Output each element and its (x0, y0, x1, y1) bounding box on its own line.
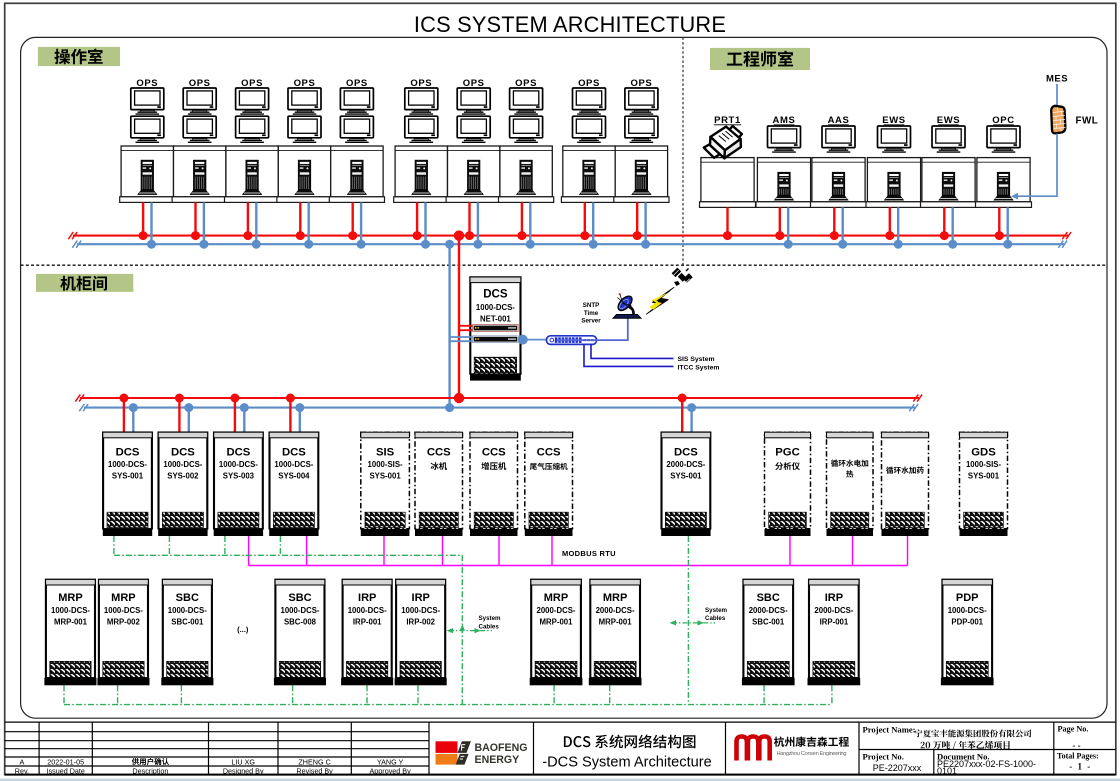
svg-text:SBC: SBC (288, 592, 311, 604)
svg-text:EWS: EWS (937, 115, 960, 126)
svg-text:PGC: PGC (775, 447, 799, 459)
svg-text:Description: Description (132, 766, 168, 775)
svg-text:SYS-001: SYS-001 (670, 472, 702, 481)
svg-text:GDS: GDS (971, 447, 996, 459)
svg-text:MRP-001: MRP-001 (54, 617, 88, 626)
svg-text:PRT1: PRT1 (714, 115, 741, 126)
svg-text:ENERGY: ENERGY (475, 754, 520, 766)
svg-text:SIS System: SIS System (678, 356, 715, 363)
svg-text:1000-DCS-: 1000-DCS- (104, 606, 143, 615)
svg-text:ICS SYSTEM ARCHITECTURE: ICS SYSTEM ARCHITECTURE (414, 12, 726, 37)
svg-text:DCS: DCS (282, 447, 306, 459)
svg-text:Cables: Cables (479, 624, 500, 631)
svg-text:PE-2207xxx: PE-2207xxx (873, 763, 922, 773)
svg-text:MES: MES (1046, 74, 1068, 85)
svg-text:1000-DCS-: 1000-DCS- (51, 606, 90, 615)
svg-text:System: System (705, 607, 728, 614)
svg-text:2000-DCS-: 2000-DCS- (749, 606, 788, 615)
svg-text:IRP: IRP (412, 592, 430, 604)
svg-text:AMS: AMS (773, 115, 796, 126)
svg-text:DCS: DCS (116, 447, 140, 459)
svg-text:IRP: IRP (825, 592, 843, 604)
svg-text:MRP-001: MRP-001 (540, 617, 574, 626)
svg-text:1000-DCS-: 1000-DCS- (281, 606, 320, 615)
svg-text:DCS: DCS (674, 447, 698, 459)
svg-text:MODBUS RTU: MODBUS RTU (562, 549, 616, 558)
svg-text:SNTP: SNTP (583, 302, 600, 309)
svg-text:AAS: AAS (828, 115, 850, 126)
svg-text:2000-DCS-: 2000-DCS- (814, 606, 853, 615)
svg-text:PDP: PDP (956, 592, 979, 604)
svg-text:Approved By: Approved By (370, 766, 412, 775)
svg-text:MRP-001: MRP-001 (599, 617, 633, 626)
svg-text:SBC-008: SBC-008 (284, 617, 317, 626)
svg-text:SBC-001: SBC-001 (752, 617, 785, 626)
svg-text:2022-01-05: 2022-01-05 (47, 758, 84, 767)
svg-text:Hangzhou Consen Engineering: Hangzhou Consen Engineering (777, 751, 847, 757)
svg-text:1000-DCS-: 1000-DCS- (401, 606, 440, 615)
svg-text:A: A (20, 758, 25, 767)
svg-text:IRP: IRP (358, 592, 376, 604)
svg-text:Project No.: Project No. (863, 752, 904, 762)
svg-text:OPC: OPC (992, 115, 1014, 126)
svg-text:SYS-002: SYS-002 (167, 472, 199, 481)
svg-text:Revised By: Revised By (296, 766, 333, 775)
svg-text:1000-DCS-: 1000-DCS- (163, 460, 202, 469)
svg-text:IRP-002: IRP-002 (406, 617, 435, 626)
svg-text:Total Pages:: Total Pages: (1057, 752, 1099, 761)
svg-text:ZHENG C: ZHENG C (298, 758, 330, 767)
svg-text:SBC: SBC (176, 592, 199, 604)
svg-text:PDP-001: PDP-001 (951, 617, 983, 626)
svg-text:1000-DCS-: 1000-DCS- (348, 606, 387, 615)
svg-text:IRP-001: IRP-001 (353, 617, 382, 626)
svg-text:System: System (479, 615, 502, 622)
svg-text:SYS-001: SYS-001 (112, 472, 144, 481)
svg-text:- -: - - (1072, 741, 1080, 751)
svg-text:SIS: SIS (376, 447, 395, 459)
svg-text:MRP: MRP (544, 592, 568, 604)
svg-text:Rev.: Rev. (15, 766, 29, 775)
svg-text:SYS-001: SYS-001 (968, 472, 1000, 481)
svg-text:SYS-001: SYS-001 (369, 472, 401, 481)
svg-text:2000-DCS-: 2000-DCS- (596, 606, 635, 615)
svg-text:1000-DCS-: 1000-DCS- (108, 460, 147, 469)
svg-text:1000-DCS-: 1000-DCS- (219, 460, 258, 469)
svg-text:1000-DCS-: 1000-DCS- (948, 606, 987, 615)
svg-text:Server: Server (581, 317, 601, 324)
svg-text:MRP: MRP (111, 592, 135, 604)
svg-text:MRP: MRP (58, 592, 82, 604)
svg-text:CCS: CCS (482, 447, 506, 459)
svg-text:MRP: MRP (603, 592, 627, 604)
svg-text:1000-SIS-: 1000-SIS- (966, 460, 1002, 469)
svg-text:1000-SIS-: 1000-SIS- (368, 460, 404, 469)
svg-text:1000-DCS-: 1000-DCS- (274, 460, 313, 469)
svg-text:SBC-001: SBC-001 (171, 617, 204, 626)
svg-text:Time: Time (584, 310, 599, 317)
svg-text:Page No.: Page No. (1058, 725, 1089, 734)
svg-text:ITCC System: ITCC System (678, 364, 720, 371)
svg-text:IRP-001: IRP-001 (820, 617, 849, 626)
svg-text:CCS: CCS (537, 447, 561, 459)
svg-text:Issued Date: Issued Date (47, 766, 85, 775)
svg-text:EWS: EWS (882, 115, 905, 126)
svg-text:-DCS System Architecture: -DCS System Architecture (542, 754, 712, 770)
svg-text:CCS: CCS (427, 447, 451, 459)
svg-text:(...): (...) (237, 625, 249, 634)
svg-text:0101: 0101 (937, 766, 957, 776)
svg-text:1000-DCS-: 1000-DCS- (168, 606, 207, 615)
svg-text:SYS-004: SYS-004 (278, 472, 310, 481)
svg-text:BAOFENG: BAOFENG (475, 742, 528, 754)
svg-text:SBC: SBC (757, 592, 780, 604)
svg-text:DCS: DCS (171, 447, 195, 459)
svg-text:- 1 -: - 1 - (1069, 761, 1092, 771)
svg-text:2000-DCS-: 2000-DCS- (537, 606, 576, 615)
svg-text:2000-DCS-: 2000-DCS- (666, 460, 705, 469)
svg-text:1000-DCS-: 1000-DCS- (476, 303, 515, 312)
svg-text:YANG Y: YANG Y (377, 758, 404, 767)
svg-text:Designed By: Designed By (223, 766, 264, 775)
svg-text:SYS-003: SYS-003 (223, 472, 255, 481)
svg-text:DCS: DCS (226, 447, 250, 459)
svg-text:MRP-002: MRP-002 (107, 617, 141, 626)
svg-text:Project Name:: Project Name: (863, 724, 916, 734)
svg-text:NET-001: NET-001 (480, 315, 511, 324)
svg-text:LIU XG: LIU XG (231, 758, 255, 767)
svg-text:FWL: FWL (1076, 116, 1099, 127)
svg-text:Cables: Cables (705, 615, 726, 622)
svg-text:DCS: DCS (483, 289, 508, 301)
